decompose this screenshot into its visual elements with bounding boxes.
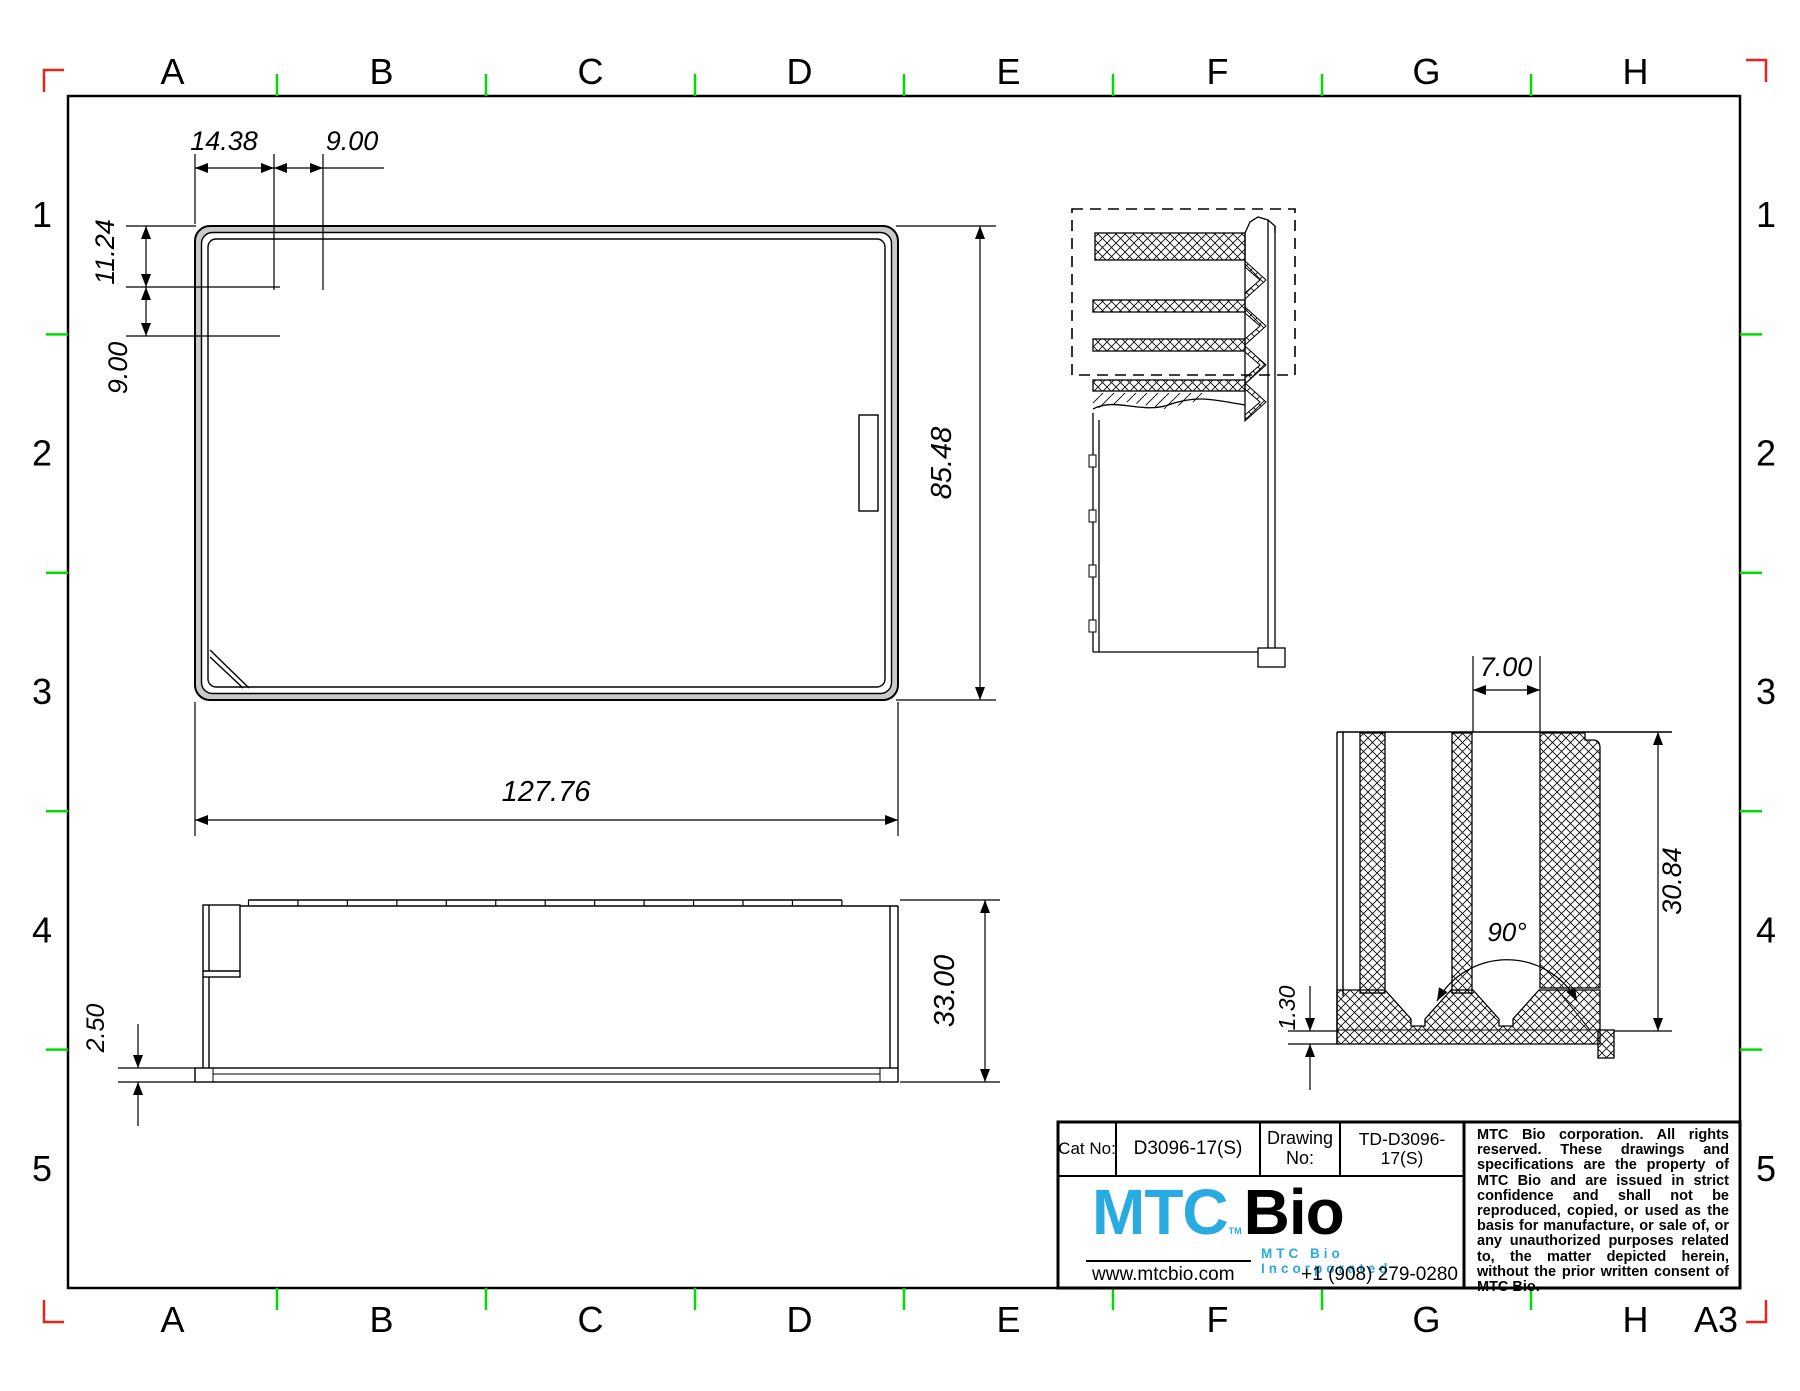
logo-bio-text: Bio [1244,1186,1344,1238]
grid-col-bottom-C: C [578,1299,604,1340]
dim-cone-angle: 90° [1487,917,1526,947]
grid-col-bottom-E: E [996,1299,1020,1340]
drawing-no-value: TD-D3096-17(S) [1340,1122,1464,1176]
dim-pitch-y: 9.00 [103,342,133,395]
phone-text: +1 (908) 279-0280 [1301,1264,1458,1286]
contact-row: www.mtcbio.com +1 (908) 279-0280 [1092,1264,1458,1286]
plate-side-view [195,900,898,1082]
grid-col-top-A: A [160,51,184,92]
grid-col-top-E: E [996,51,1020,92]
side-tab [859,415,878,511]
corner-mark-top-right [1746,60,1766,82]
dim-offset-y: 11.24 [90,219,120,285]
grid-col-top-F: F [1207,51,1229,92]
website-text: www.mtcbio.com [1092,1264,1235,1286]
grid-col-top-G: G [1412,51,1440,92]
logo-mtc-text: MTC [1092,1186,1228,1238]
grid-row-left-1: 1 [32,194,52,235]
grid-row-right-3: 3 [1756,671,1776,712]
dim-offset-x: 14.38 [190,126,258,156]
dim-well-depth: 30.84 [1657,847,1687,915]
dim-pitch-x: 9.00 [326,126,379,156]
well-detail-view [1337,732,1672,1058]
grid-col-bottom-D: D [787,1299,813,1340]
grid-row-right-4: 4 [1756,909,1776,950]
dim-skirt-height: 2.50 [82,1004,110,1054]
grid-col-top-D: D [787,51,813,92]
grid-row-left-2: 2 [32,433,52,474]
dim-well-diameter: 7.00 [1480,652,1533,682]
side-view-dimensions [118,900,1000,1126]
logo-tm-mark: TM [1229,1226,1242,1236]
grid-col-top-B: B [369,51,393,92]
grid-col-bottom-F: F [1207,1299,1229,1340]
grid-col-bottom-H: H [1623,1299,1649,1340]
legal-notice: MTC Bio corporation. All rights reserved… [1477,1128,1729,1284]
dim-plate-width: 85.48 [926,427,958,500]
logo-rule [1086,1260,1251,1262]
grid-row-right-1: 1 [1756,194,1776,235]
grid-col-bottom-G: G [1412,1299,1440,1340]
grid-col-bottom-A: A [160,1299,184,1340]
corner-mark-top-left [44,70,64,92]
grid-col-bottom-B: B [369,1299,393,1340]
grid-col-top-H: H [1623,51,1649,92]
drawing-no-label-line1: Drawing [1267,1129,1333,1149]
dim-floor-thickness: 1.30 [1274,985,1300,1030]
paper-size-label: A3 [1694,1299,1738,1340]
dim-plate-length: 127.76 [502,776,592,808]
cat-no-label: Cat No: [1058,1122,1116,1176]
grid-row-right-5: 5 [1756,1148,1776,1189]
drawing-no-label-line2: No: [1286,1149,1314,1169]
dim-plate-height: 33.00 [929,955,961,1028]
grid-row-right-2: 2 [1756,433,1776,474]
corner-mark-bottom-right [1746,1300,1766,1322]
mtc-bio-logo: MTC TM Bio [1092,1186,1462,1238]
plate-top-view [195,226,898,700]
grid-row-left-5: 5 [32,1148,52,1189]
grid-row-left-4: 4 [32,909,52,950]
corner-mark-bottom-left [44,1300,64,1322]
cat-no-value: D3096-17(S) [1116,1122,1260,1176]
grid-row-left-3: 3 [32,671,52,712]
grid-col-top-C: C [578,51,604,92]
plate-section-view [1072,209,1295,667]
drawing-sheet: AABBCCDDEEFFGGHH1122334455 1234567891011… [0,0,1800,1391]
drawing-no-label: Drawing No: [1260,1122,1340,1176]
